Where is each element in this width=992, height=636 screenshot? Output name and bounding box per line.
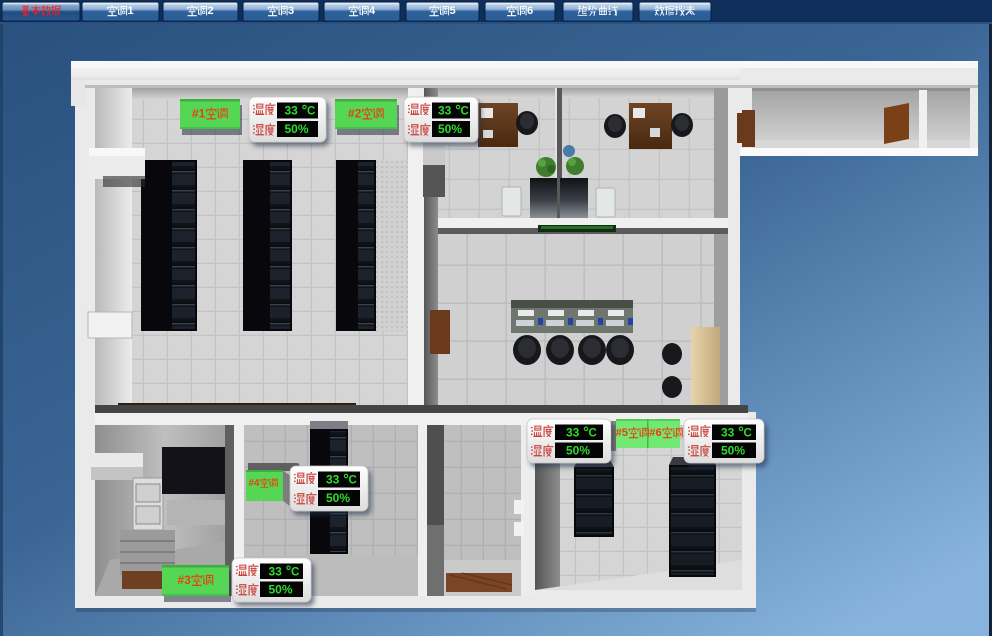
svg-text:C: C [589, 427, 597, 439]
svg-text:C: C [307, 106, 315, 118]
svg-text:#1: #1 [192, 106, 206, 120]
svg-text:#3: #3 [177, 573, 191, 587]
svg-text:33: 33 [285, 104, 299, 118]
svg-text:2: 2 [208, 5, 214, 17]
svg-text:50%: 50% [326, 491, 350, 505]
svg-text:50%: 50% [269, 583, 293, 597]
svg-text:33: 33 [721, 425, 735, 439]
svg-text:C: C [291, 567, 299, 579]
svg-text:50%: 50% [566, 443, 590, 457]
svg-text:50%: 50% [438, 122, 462, 136]
svg-text:5: 5 [450, 5, 456, 17]
svg-text:33: 33 [269, 565, 283, 579]
svg-text:3: 3 [288, 5, 294, 17]
svg-text:50%: 50% [285, 122, 309, 136]
svg-text:#6: #6 [649, 427, 661, 439]
svg-text:C: C [744, 427, 752, 439]
svg-text:50%: 50% [721, 443, 745, 457]
svg-text:4: 4 [369, 5, 376, 17]
svg-text:1: 1 [128, 5, 134, 17]
svg-text:C: C [461, 106, 469, 118]
svg-text:33: 33 [566, 425, 580, 439]
svg-text:33: 33 [438, 104, 452, 118]
svg-text:6: 6 [527, 5, 533, 17]
svg-text:C: C [349, 475, 357, 487]
svg-text:33: 33 [326, 473, 340, 487]
svg-text:#5: #5 [616, 427, 628, 439]
svg-text:#4: #4 [249, 478, 260, 489]
svg-text:#2: #2 [348, 106, 362, 120]
